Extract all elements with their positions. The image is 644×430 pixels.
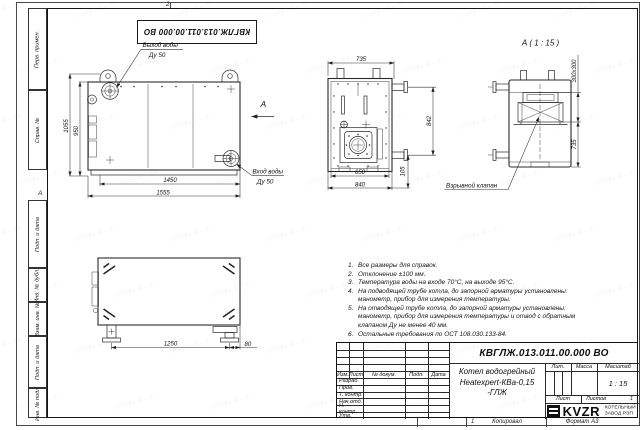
technical-notes: 1.Все размеры для справок. 2.Отклонение … [345, 262, 595, 339]
note-number: 3. [345, 279, 358, 288]
note-text: Температура воды на входе 70°С, на выход… [358, 279, 595, 288]
format-label: Формат А3 [558, 419, 606, 425]
margin-label: Подп. и дата [35, 216, 41, 251]
note-item: 6.Остальные требования по ОСТ 108.030.13… [345, 331, 595, 340]
datum-cross-marks [106, 85, 235, 164]
outlet-size: Ду 50 [148, 52, 166, 59]
note-item: 1.Все размеры для справок. [345, 262, 595, 271]
tb-line [337, 357, 449, 358]
chimney-stub [549, 71, 555, 81]
chimney-stub [337, 69, 344, 79]
outlet-flange [102, 83, 119, 100]
kvzr-logo-text: KVZR [563, 404, 600, 419]
margin-box-podp-data-1: Подп. и дата [28, 200, 47, 268]
note-text: Все размеры для справок. [358, 262, 595, 271]
company-cell: KVZR КОТЕЛЬНЫЙ ЗАВОД РЭП [545, 403, 639, 419]
margin-label: Подп. и дата [35, 344, 41, 379]
back-view: А ( 1 : 15 ) 300х300 [445, 39, 582, 190]
sig-nkontr: Н. контр. [337, 405, 363, 412]
company-name: КОТЕЛЬНЫЙ ЗАВОД РЭП [605, 405, 636, 417]
slot [364, 96, 367, 114]
strip-divider [417, 418, 418, 427]
col-doc: № докум. [363, 371, 405, 378]
dim-650: 650 [355, 170, 366, 176]
lifting-lug-right [222, 70, 238, 82]
side-flange-small [88, 95, 97, 104]
note-item: 5.На отводящей трубе котла, до запорной … [345, 305, 595, 331]
tb-line [405, 343, 406, 419]
explosion-valve [514, 93, 568, 125]
note-text: Остальные требования по ОСТ 108.030.133-… [358, 331, 595, 340]
chimney-stub [521, 71, 527, 81]
base-notch [367, 167, 378, 172]
title-block: Изм. Лист № докум. Подп. Дата Разраб. Пр… [336, 342, 638, 418]
doc-number: КВГЛЖ.013.011.00.000 ВО [449, 343, 639, 363]
base-notch [531, 162, 549, 167]
view-title: А ( 1 : 15 ) [521, 39, 560, 48]
col-list: Лист [349, 371, 363, 378]
dim-300x300: 300х300 [572, 59, 578, 83]
lug-hole [228, 74, 233, 79]
strip-divider [546, 418, 547, 427]
tb-line [337, 350, 449, 351]
tb-line [554, 371, 555, 395]
note-number: 2. [345, 271, 358, 280]
note-text: Отклонение ±100 мм. [358, 271, 595, 280]
note-number: 1. [345, 262, 358, 271]
note-number: 6. [345, 331, 358, 340]
inlet-size: Ду 50 [256, 178, 274, 185]
tb-line [337, 364, 449, 365]
ext-lines [112, 326, 258, 350]
tb-line [428, 343, 429, 419]
sig-razrab: Разраб. [337, 378, 363, 385]
mass-label: Масса [571, 363, 597, 371]
dim-80: 80 [245, 342, 252, 348]
ext-lines [328, 61, 394, 79]
sig-prov: Пров. [337, 385, 363, 392]
dim-1250: 1250 [164, 341, 178, 347]
dim-1555: 1555 [156, 190, 170, 196]
margin-box-vzam-inv: Взам. инв. № [28, 302, 47, 336]
copy-label: Копировал [482, 419, 532, 425]
side-view: 735 842 650 840 105 [328, 57, 436, 190]
col-podp: Подп. [405, 371, 428, 378]
front-view: 1055 950 1450 1555 Выход воды Ду 50 Вход… [64, 41, 284, 198]
dim-105: 105 [401, 166, 407, 177]
panel-seams [148, 84, 193, 168]
lit-label: Лит. [545, 363, 571, 371]
corner-marks [104, 264, 235, 320]
margin-box-perv-primen: Перв. примен. [28, 8, 47, 90]
hinge-bar [378, 129, 383, 159]
doc-number-stamp: КВГЛЖ.013.011.00.000 ВО [137, 20, 257, 44]
note-item: 2.Отклонение ±100 мм. [345, 271, 595, 280]
note-text: На подводящей трубе котла, до запорной а… [358, 288, 595, 305]
margin-label: Инв. № подл. [35, 386, 41, 421]
top-edge-dots [120, 86, 219, 88]
drawing-sheet: kotel-kv.kzkotel-kv.kzkotel-kv.kzkotel-k… [0, 0, 644, 430]
dim-840: 840 [355, 182, 366, 188]
margin-label: Взам. инв. № [35, 302, 41, 337]
chimney-stub [373, 69, 380, 79]
note-text: На отводящей трубе котла, до запорной ар… [358, 305, 595, 331]
left-fittings [89, 116, 97, 157]
zone-marker-left: А [38, 190, 42, 197]
sig-tkontr: Т. контр. [337, 392, 363, 399]
margin-box-inv-dubl: Инв. № дубл. [28, 268, 47, 302]
tb-line [363, 343, 364, 419]
sig-utv: Утв. [337, 412, 363, 419]
note-item: 3.Температура воды на входе 70°С, на вых… [345, 279, 595, 288]
feet [103, 325, 239, 342]
lug-hole [106, 74, 111, 79]
boiler-body-bottom [98, 258, 240, 325]
dim-735b: 735 [572, 139, 578, 150]
kvzr-logo-icon [547, 405, 560, 417]
col-izm: Изм. [337, 371, 349, 378]
margin-label: Перв. примен. [35, 30, 41, 67]
slot [342, 96, 345, 114]
back-pipes [488, 82, 509, 161]
margin-box-podp-data-2: Подп. и дата [28, 336, 47, 388]
sheets-label: Листов [586, 396, 606, 402]
lifting-lug-left [100, 70, 116, 82]
side-pipes [392, 82, 408, 161]
inlet-label: Вход воды [253, 168, 284, 176]
margin-box-inv-podl: Инв. № подл. [28, 388, 47, 418]
ext-lines [328, 172, 410, 191]
note-number: 5. [345, 305, 358, 331]
margin-box-sprav-n: Справ. № [28, 90, 47, 170]
dim-842: 842 [427, 115, 433, 126]
scale-value: 1 : 15 [597, 371, 639, 395]
view-arrow-label: А [260, 99, 267, 109]
margin-label: Справ. № [35, 117, 41, 142]
tb-line [562, 371, 563, 395]
boiler-base [91, 170, 237, 175]
note-number: 4. [345, 288, 358, 305]
note-item: 4.На подводящей трубе котла, до запорной… [345, 288, 595, 305]
burner-flange [340, 128, 377, 163]
sheets-cell: Листов 1 [581, 395, 639, 403]
dim-1450: 1450 [163, 178, 177, 184]
product-name: Котел водогрейный Heatexpert-КВа-0,15 -Г… [449, 363, 545, 403]
bottom-view: 1250 80 [92, 258, 257, 350]
boiler-body-front [88, 82, 240, 170]
margin-label: Инв. № дубл. [35, 268, 41, 302]
inlet-flange [215, 151, 239, 167]
scale-label: Масштаб [597, 363, 639, 371]
dim-735: 735 [356, 57, 367, 63]
leader-line [508, 117, 539, 190]
strip-divider [466, 418, 467, 427]
dim-1055: 1055 [64, 119, 70, 133]
sheet-label: Лист [545, 395, 581, 403]
company-name-line2: ЗАВОД РЭП [605, 411, 636, 417]
strip-sheet-num: 1 [471, 419, 474, 425]
valve-label: Взрывной клапан [446, 182, 498, 190]
sheets-value: 1 [630, 396, 633, 402]
base-notch [339, 167, 350, 172]
dim-950: 950 [74, 125, 80, 136]
product-name-line1: Котел водогрейный [459, 367, 535, 378]
product-name-line2: Heatexpert-КВа-0,15 -ГЛЖ [449, 378, 545, 400]
col-data: Дата [428, 371, 449, 378]
